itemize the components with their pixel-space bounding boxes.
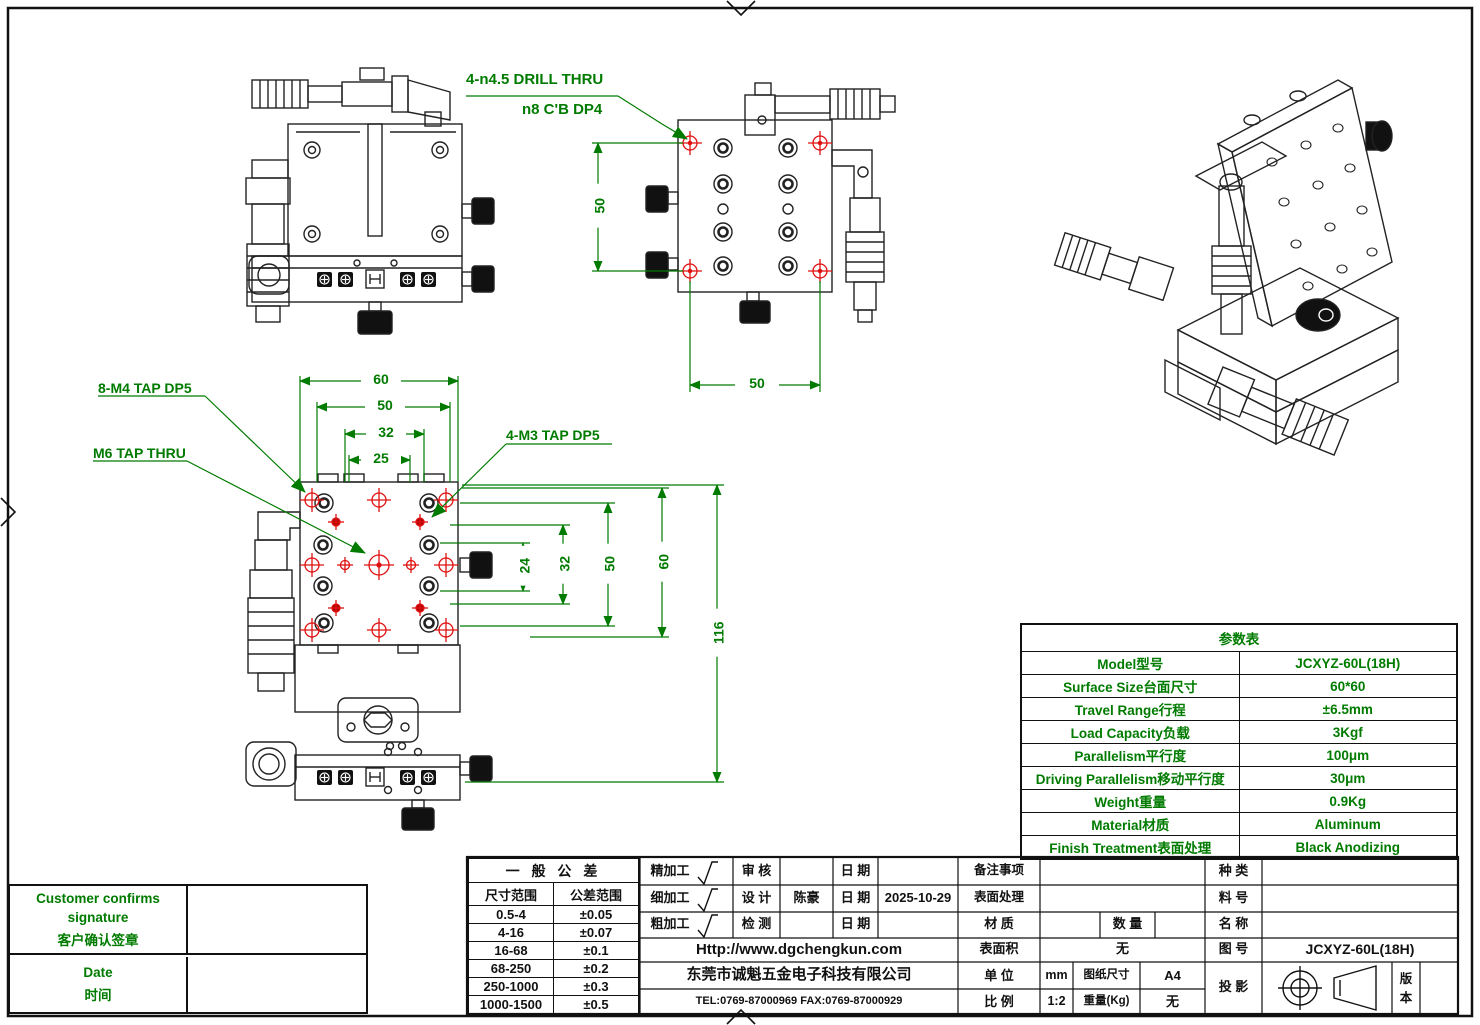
tolerance-value: ±0.2	[554, 960, 640, 978]
drill-note-line2: n8 C'B DP4	[522, 102, 602, 119]
name-label: 名 称	[1205, 917, 1262, 931]
param-value: Aluminum	[1239, 813, 1457, 836]
paper-value: A4	[1140, 969, 1205, 983]
projection-label: 投 影	[1205, 980, 1262, 994]
tolerance-title: 一 般 公 差	[468, 858, 639, 883]
param-label: Load Capacity负载	[1021, 721, 1239, 744]
tolerance-table: 一 般 公 差 尺寸范围公差范围 0.5-4±0.05 4-16±0.07 16…	[467, 857, 640, 1015]
tolerance-value: ±0.1	[554, 942, 640, 960]
param-value: 3Kgf	[1239, 721, 1457, 744]
machining-medium-label: 细加工	[642, 891, 698, 905]
surface-treatment-label: 表面处理	[958, 891, 1040, 905]
tolerance-range: 250-1000	[468, 978, 554, 996]
dwg-no-label: 图 号	[1205, 942, 1262, 956]
tolerance-value: ±0.07	[554, 924, 640, 942]
tolerance-range: 68-250	[468, 960, 554, 978]
dim-plan-v50: 50	[602, 544, 617, 584]
customer-signature-area[interactable]	[188, 886, 366, 955]
dim-plan-50: 50	[365, 398, 405, 413]
annotation-8m4: 8-M4 TAP DP5	[98, 381, 192, 396]
scale-value: 1:2	[1040, 995, 1073, 1009]
part-no-label: 料 号	[1205, 891, 1262, 905]
machining-fine-label: 精加工	[642, 864, 698, 878]
customer-confirm-en2: signature	[10, 910, 186, 925]
projection-symbol-icon	[1278, 966, 1376, 1010]
dimension-lines	[93, 96, 820, 782]
surface-area-label: 表面积	[958, 942, 1040, 956]
customer-box: Customer confirms signature 客户确认签章 Date …	[8, 884, 368, 1014]
param-value: 60*60	[1239, 675, 1457, 698]
customer-confirm-en1: Customer confirms	[10, 891, 186, 906]
tolerance-value: ±0.3	[554, 978, 640, 996]
unit-label: 单 位	[958, 969, 1040, 983]
kind-label: 种 类	[1205, 864, 1262, 878]
customer-confirm-label: Customer confirms signature 客户确认签章	[10, 886, 188, 955]
version-label: 版本	[1394, 970, 1418, 1008]
date-label-1: 日 期	[833, 864, 878, 878]
customer-date-en: Date	[10, 965, 186, 980]
dim-plan-v60: 60	[656, 542, 671, 582]
review-label: 审 核	[733, 864, 780, 878]
remark-label: 备注事项	[958, 864, 1040, 878]
param-label: Driving Parallelism移动平行度	[1021, 767, 1239, 790]
customer-confirm-cn: 客户确认签章	[10, 929, 186, 949]
param-value: ±6.5mm	[1239, 698, 1457, 721]
tolerance-range: 1000-1500	[468, 996, 554, 1015]
param-value: 30μm	[1239, 767, 1457, 790]
surface-finish-icon	[698, 862, 718, 937]
design-date: 2025-10-29	[878, 891, 958, 905]
qty-label: 数 量	[1100, 917, 1155, 931]
param-label: Finish Treatment表面处理	[1021, 836, 1239, 860]
tel-fax: TEL:0769-87000969 FAX:0769-87000929	[642, 995, 956, 1007]
param-label: Material材质	[1021, 813, 1239, 836]
tolerance-col2: 公差范围	[554, 883, 640, 906]
company-name: 东莞市诚魁五金电子科技有限公司	[642, 967, 956, 984]
param-label: Weight重量	[1021, 790, 1239, 813]
dim-plan-32: 32	[366, 425, 406, 440]
customer-date-area[interactable]	[188, 957, 366, 1012]
machining-rough-label: 粗加工	[642, 917, 698, 931]
param-label: Surface Size台面尺寸	[1021, 675, 1239, 698]
tolerance-range: 16-68	[468, 942, 554, 960]
dim-side-width: 50	[735, 376, 779, 391]
param-value: JCXYZ-60L(18H)	[1239, 652, 1457, 675]
annotation-4m3: 4-M3 TAP DP5	[506, 428, 600, 443]
tolerance-col1: 尺寸范围	[468, 883, 554, 906]
paper-label: 图纸尺寸	[1073, 969, 1140, 982]
param-value: 100μm	[1239, 744, 1457, 767]
weight-label: 重量(Kg)	[1073, 995, 1140, 1008]
param-value: Black Anodizing	[1239, 836, 1457, 860]
surface-area-value: 无	[1040, 942, 1205, 956]
param-value: 0.9Kg	[1239, 790, 1457, 813]
drawing-sheet: 4-n4.5 DRILL THRU n8 C'B DP4 8-M4 TAP DP…	[0, 0, 1480, 1025]
dim-side-height: 50	[592, 184, 607, 228]
tolerance-range: 4-16	[468, 924, 554, 942]
date-label-2: 日 期	[833, 891, 878, 905]
unit-value: mm	[1040, 969, 1073, 983]
material-label: 材 质	[958, 917, 1040, 931]
dim-plan-v24: 24	[517, 546, 532, 586]
param-label: Model型号	[1021, 652, 1239, 675]
inspect-label: 检 测	[733, 917, 780, 931]
customer-date-label: Date 时间	[10, 957, 188, 1012]
tolerance-value: ±0.5	[554, 996, 640, 1015]
dim-plan-25: 25	[361, 451, 401, 466]
dim-plan-v32: 32	[557, 544, 572, 584]
scale-label: 比 例	[958, 995, 1040, 1009]
annotation-m6: M6 TAP THRU	[93, 446, 186, 461]
tolerance-range: 0.5-4	[468, 906, 554, 924]
isometric-view	[1055, 80, 1398, 455]
param-table-title: 参数表	[1021, 624, 1457, 652]
dim-plan-v116: 116	[711, 609, 726, 657]
tolerance-value: ±0.05	[554, 906, 640, 924]
front-view	[246, 68, 494, 334]
customer-date-cn: 时间	[10, 984, 186, 1004]
design-label: 设 计	[733, 891, 780, 905]
dim-plan-60: 60	[361, 372, 401, 387]
weight-value: 无	[1140, 995, 1205, 1009]
param-label: Travel Range行程	[1021, 698, 1239, 721]
drill-note-line1: 4-n4.5 DRILL THRU	[466, 72, 603, 89]
dwg-no-value: JCXYZ-60L(18H)	[1262, 942, 1458, 957]
designer-name: 陈豪	[780, 891, 833, 905]
plan-view	[246, 474, 492, 830]
param-table: 参数表 Model型号JCXYZ-60L(18H) Surface Size台面…	[1020, 623, 1458, 860]
date-label-3: 日 期	[833, 917, 878, 931]
param-label: Parallelism平行度	[1021, 744, 1239, 767]
side-view	[646, 83, 895, 323]
company-url: Http://www.dgchengkun.com	[642, 942, 956, 959]
